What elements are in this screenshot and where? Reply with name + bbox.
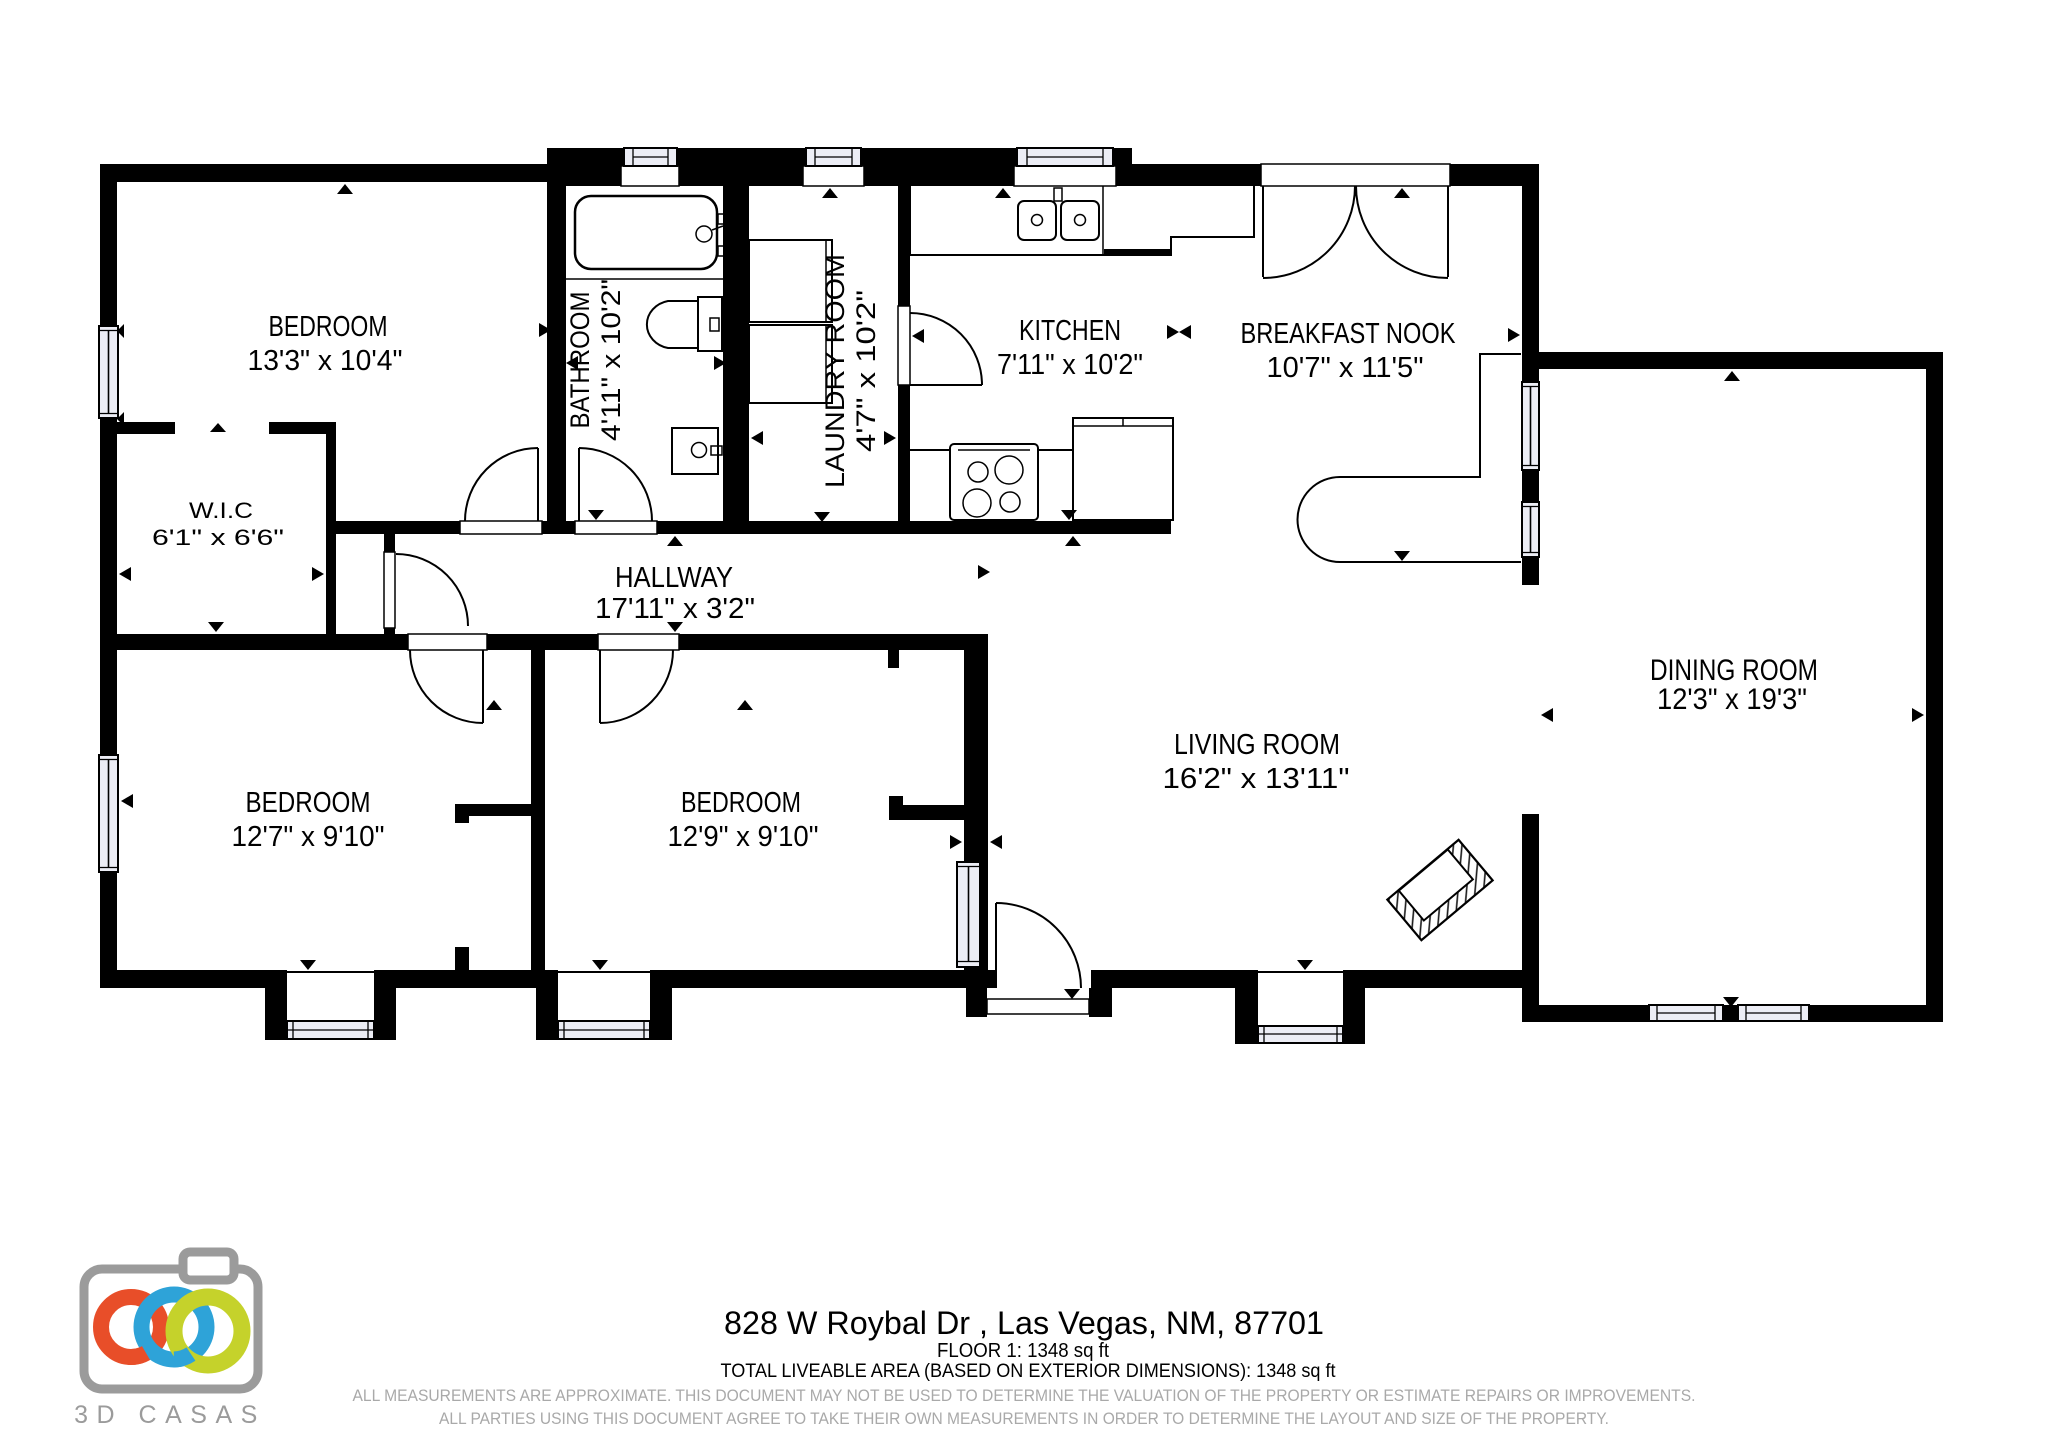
svg-text:12'9" x 9'10": 12'9" x 9'10" xyxy=(668,821,819,853)
svg-text:BEDROOM: BEDROOM xyxy=(246,787,371,819)
svg-text:12'7" x 9'10": 12'7" x 9'10" xyxy=(232,821,385,853)
svg-text:10'7" x 11'5": 10'7" x 11'5" xyxy=(1267,352,1424,384)
svg-text:ALL PARTIES USING THIS DOCUMEN: ALL PARTIES USING THIS DOCUMENT AGREE TO… xyxy=(439,1409,1609,1428)
svg-text:4'11" x 10'2": 4'11" x 10'2" xyxy=(596,279,626,441)
svg-text:ALL MEASUREMENTS ARE APPROXIMA: ALL MEASUREMENTS ARE APPROXIMATE. THIS D… xyxy=(353,1386,1696,1405)
svg-text:6'1" x 6'6": 6'1" x 6'6" xyxy=(152,525,284,550)
svg-text:16'2" x 13'11": 16'2" x 13'11" xyxy=(1163,763,1350,795)
svg-text:13'3" x 10'4": 13'3" x 10'4" xyxy=(248,345,403,377)
svg-text:7'11" x 10'2": 7'11" x 10'2" xyxy=(997,349,1143,381)
svg-text:BEDROOM: BEDROOM xyxy=(681,787,801,819)
svg-text:4'7" x 10'2": 4'7" x 10'2" xyxy=(851,290,881,452)
svg-text:TOTAL LIVEABLE AREA (BASED ON: TOTAL LIVEABLE AREA (BASED ON EXTERIOR D… xyxy=(721,1361,1337,1382)
svg-text:BATHROOM: BATHROOM xyxy=(565,292,595,429)
svg-text:3D CASAS: 3D CASAS xyxy=(74,1401,266,1429)
svg-text:HALLWAY: HALLWAY xyxy=(615,562,733,594)
svg-text:17'11" x 3'2": 17'11" x 3'2" xyxy=(595,593,755,625)
svg-text:W.I.C: W.I.C xyxy=(189,498,253,523)
svg-text:12'3" x 19'3": 12'3" x 19'3" xyxy=(1657,683,1807,716)
svg-text:LIVING ROOM: LIVING ROOM xyxy=(1174,729,1340,761)
svg-text:828 W Roybal Dr , Las Vegas, N: 828 W Roybal Dr , Las Vegas, NM, 87701 xyxy=(724,1305,1324,1341)
svg-text:BREAKFAST NOOK: BREAKFAST NOOK xyxy=(1241,318,1457,350)
svg-text:BEDROOM: BEDROOM xyxy=(269,311,388,343)
svg-text:LAUNDRY ROOM: LAUNDRY ROOM xyxy=(820,254,850,488)
svg-text:KITCHEN: KITCHEN xyxy=(1019,315,1121,347)
svg-text:FLOOR 1: 1348 sq ft: FLOOR 1: 1348 sq ft xyxy=(937,1340,1109,1362)
